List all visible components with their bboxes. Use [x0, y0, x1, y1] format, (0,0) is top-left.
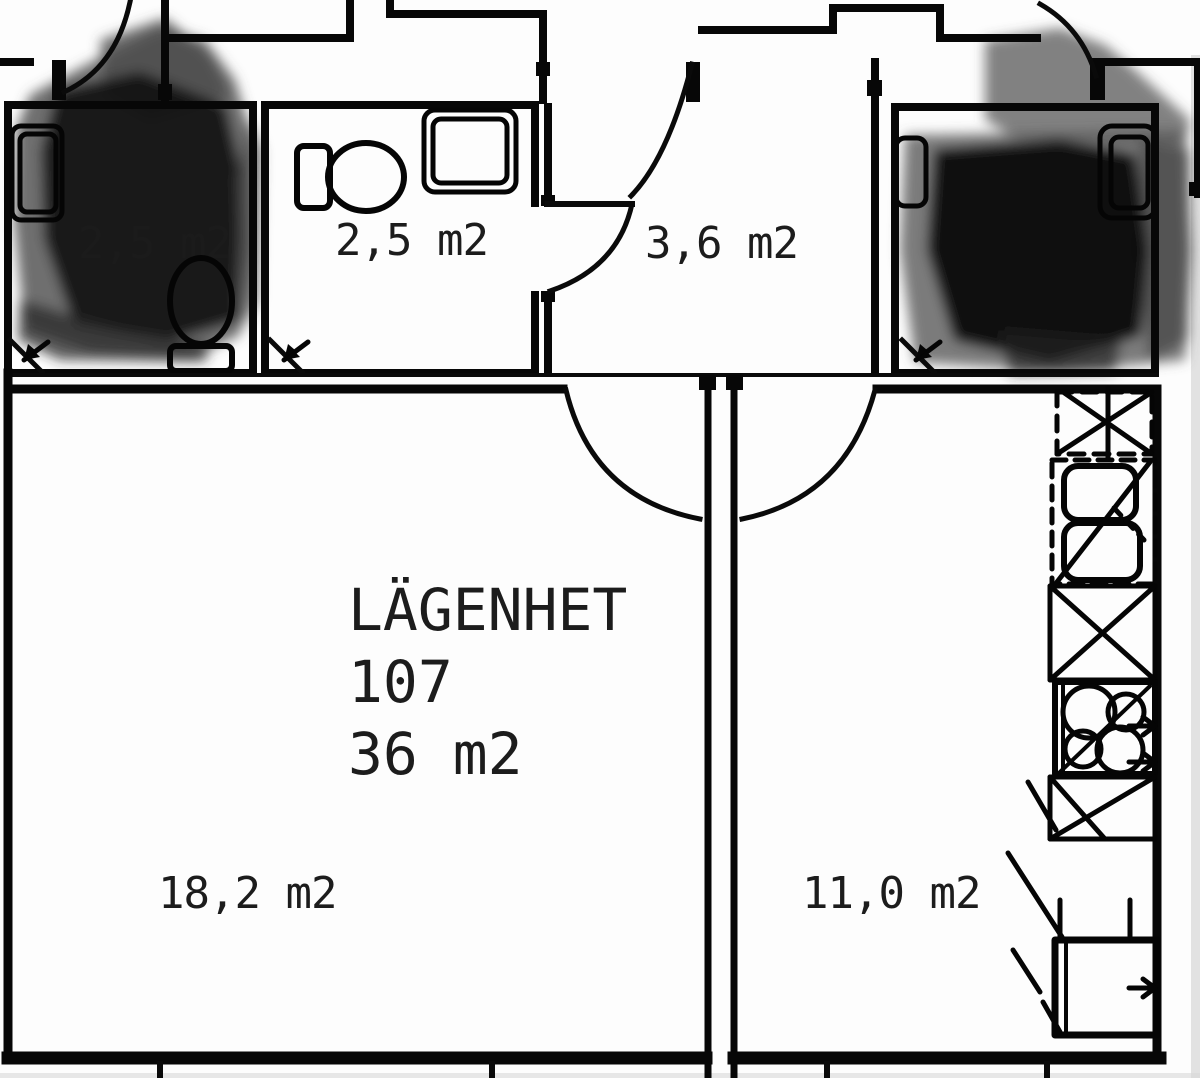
kitchen-fixtures	[1008, 388, 1157, 1035]
plan-title-line1: LÄGENHET	[348, 576, 627, 644]
room-label-kitchen: 11,0 m2	[802, 868, 980, 919]
photo-edge-right	[1191, 55, 1200, 1078]
hallway: 3,6 m2	[541, 62, 882, 373]
floor-plan: 2,5 m2	[0, 0, 1200, 1078]
plan-title-line3: 36 m2	[348, 720, 523, 788]
plan-title-line2: 107	[348, 648, 453, 716]
room-label-bathroom: 2,5 m2	[335, 215, 488, 266]
bathroom: 2,5 m2	[265, 105, 535, 373]
door-arc-living	[566, 390, 700, 519]
room-label-living: 18,2 m2	[158, 868, 336, 919]
mid-walls	[8, 375, 1157, 389]
room-label-hallway: 3,6 m2	[645, 218, 798, 269]
door-arc-kitchen	[742, 390, 875, 519]
door-arc-hallway-entry	[631, 64, 692, 196]
partition-wall	[566, 375, 875, 1078]
door-arc-bathroom	[550, 204, 632, 291]
vent-arrow-3	[1129, 979, 1155, 997]
floor-plan-drawing: 2,5 m2	[0, 0, 1200, 1078]
photo-edge-bottom	[0, 1073, 1200, 1078]
living-room: LÄGENHET 107 36 m2 18,2 m2	[8, 373, 706, 1078]
kitchen-room: 11,0 m2	[734, 388, 1160, 1078]
redaction-scribble-left	[14, 18, 262, 362]
